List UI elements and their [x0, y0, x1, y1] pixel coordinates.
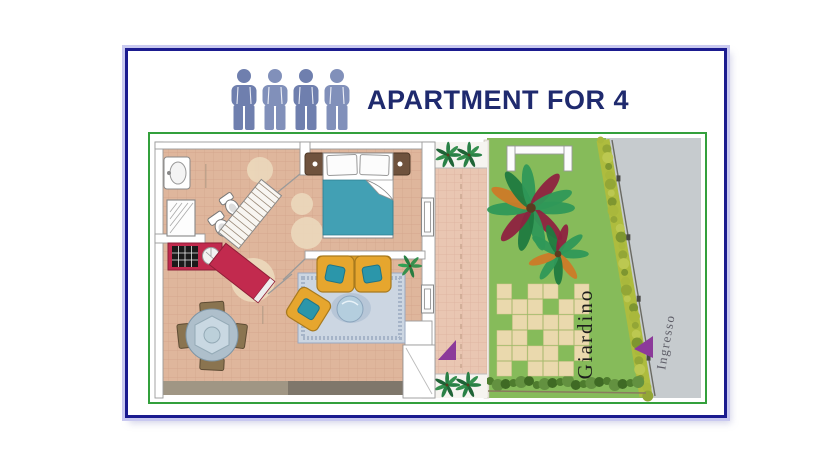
bottom-wall: [163, 381, 288, 395]
person-icon: [322, 67, 352, 131]
terrace: [434, 142, 487, 398]
floor-plan: Giardino Ingresso: [148, 132, 707, 404]
shower: [167, 200, 195, 236]
apartment: [155, 142, 435, 398]
header: APARTMENT FOR 4: [128, 51, 724, 131]
occupant-icons: [229, 67, 353, 131]
sofa: [317, 256, 391, 292]
person-icon: [291, 67, 321, 131]
sink: [164, 157, 190, 189]
floor-plan-drawing: Giardino Ingresso: [150, 134, 705, 402]
garden-label: Giardino: [573, 289, 597, 380]
person-icon: [260, 67, 290, 131]
double-bed: [323, 153, 393, 238]
room-label-mark: [205, 164, 207, 188]
coffee-table: [337, 296, 363, 322]
poster-frame: APARTMENT FOR 4: [125, 48, 727, 418]
person-icon: [229, 67, 259, 131]
room-label-mark: [262, 306, 264, 324]
stove: [172, 246, 198, 267]
page-title: APARTMENT FOR 4: [367, 85, 629, 116]
garden-area: Giardino Ingresso: [484, 137, 701, 402]
page: { "header": { "title": "APARTMENT FOR 4"…: [0, 0, 840, 460]
